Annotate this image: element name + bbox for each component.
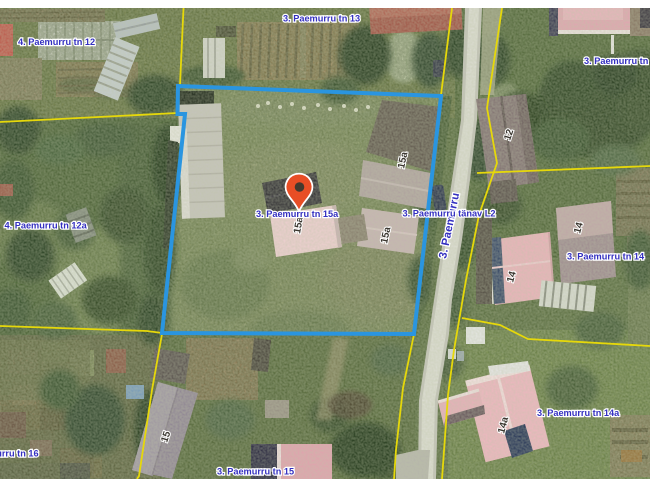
- svg-text:3. Paemurru tn 13: 3. Paemurru tn 13: [283, 14, 360, 24]
- svg-text:4. Paemurru tn 12: 4. Paemurru tn 12: [18, 37, 95, 47]
- svg-text:3. Paemurru tänav L2: 3. Paemurru tänav L2: [403, 209, 496, 219]
- svg-text:4. Paemurru tn 12a: 4. Paemurru tn 12a: [5, 221, 88, 231]
- svg-text:3. Paemurru tn 14a: 3. Paemurru tn 14a: [537, 408, 620, 418]
- svg-text:3. Paemurru tn 14: 3. Paemurru tn 14: [567, 252, 645, 262]
- svg-text:4. Paemurru tn 16: 4. Paemurru tn 16: [0, 449, 39, 459]
- svg-text:3. Paemurru tn 15a: 3. Paemurru tn 15a: [256, 209, 339, 219]
- svg-text:3. Paemurru tn 15: 3. Paemurru tn 15: [217, 467, 294, 477]
- svg-text:3. Paemurru tn: 3. Paemurru tn: [584, 56, 649, 66]
